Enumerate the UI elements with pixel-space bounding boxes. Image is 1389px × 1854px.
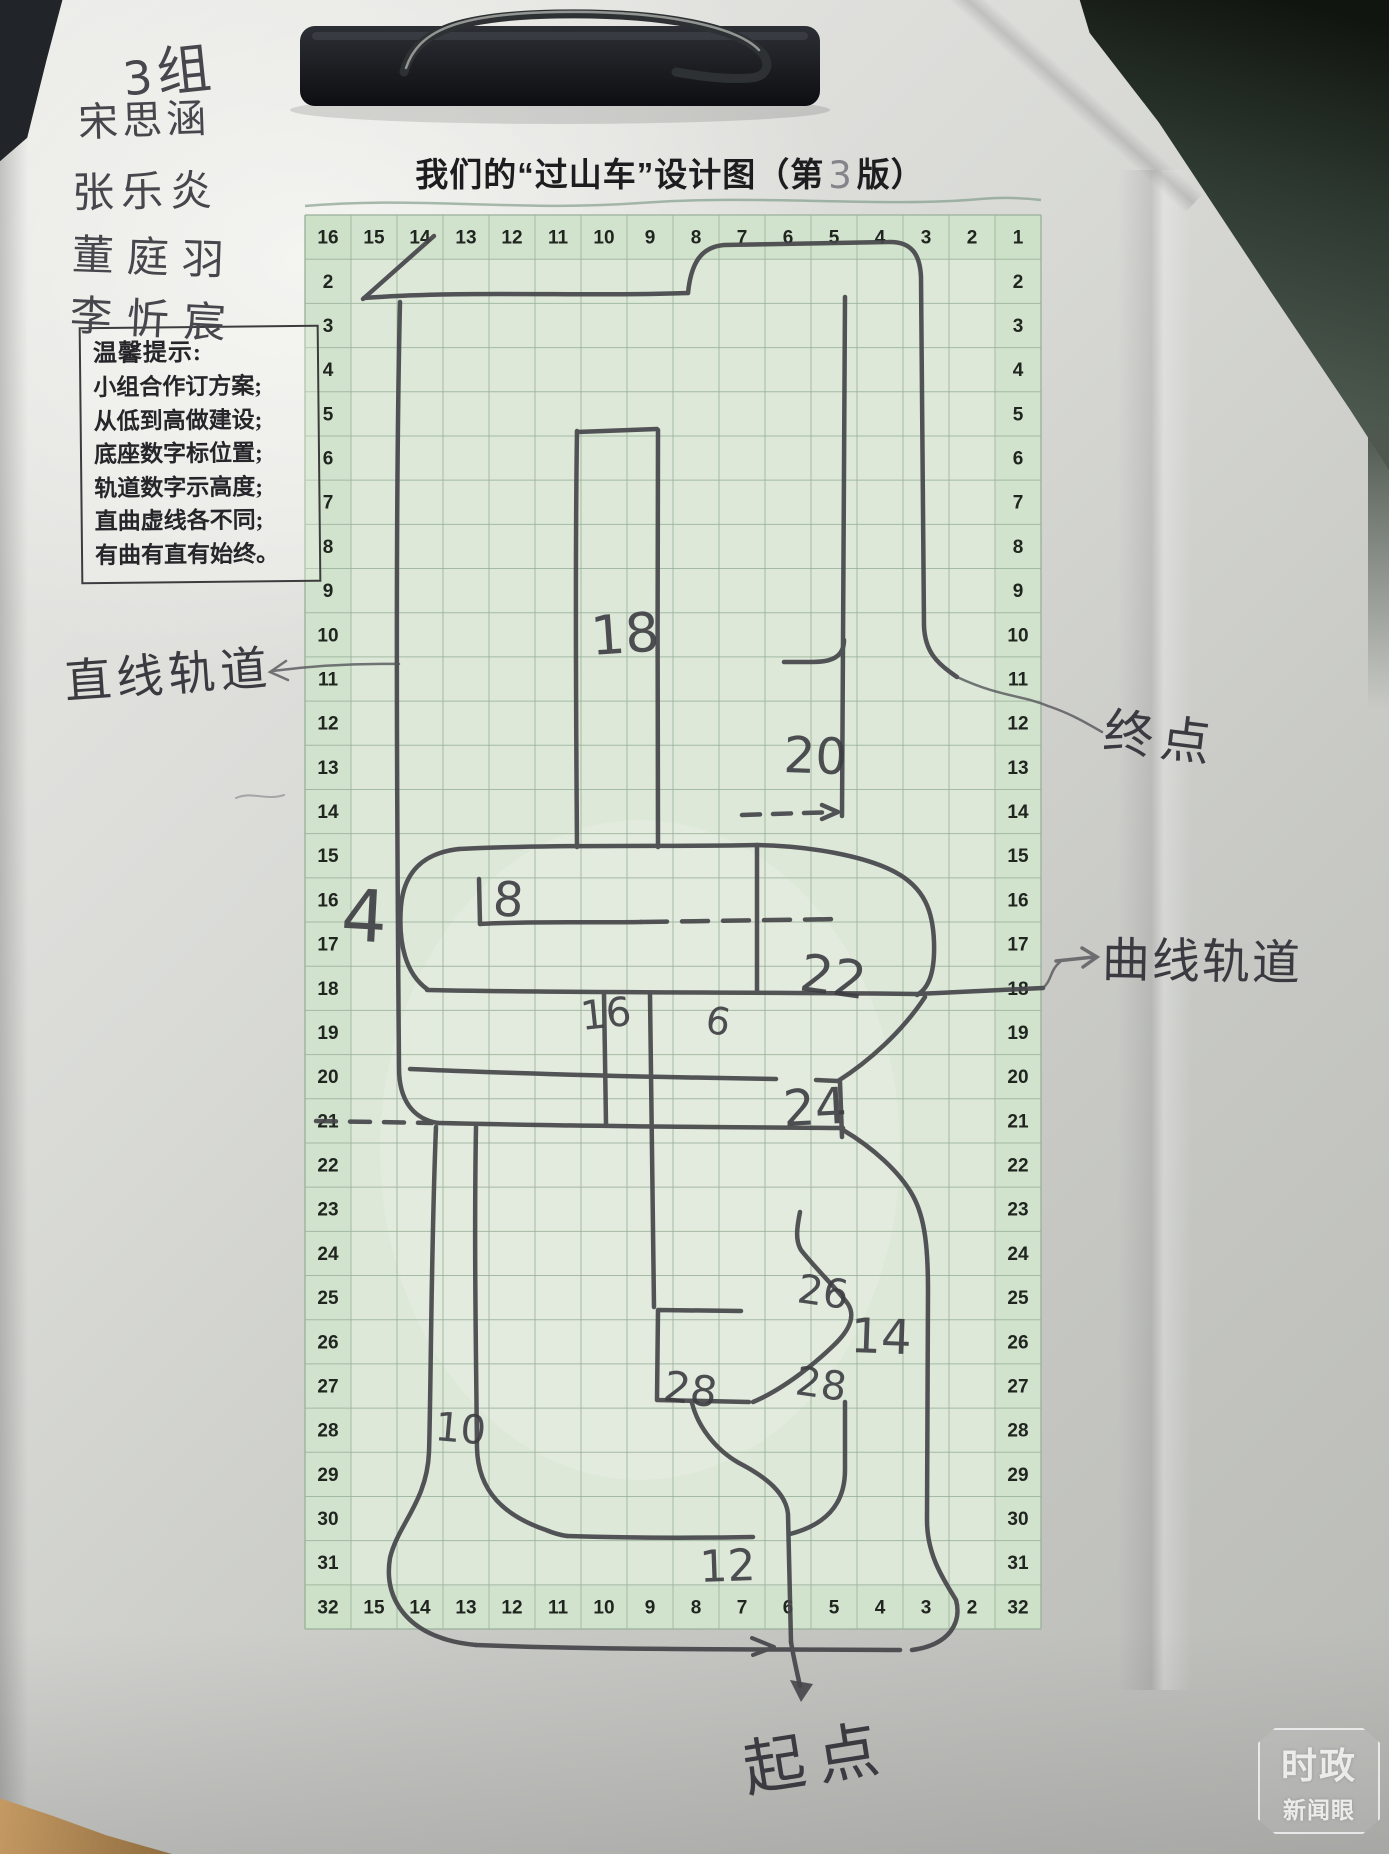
tips-line: 直曲虚线各不同;	[95, 503, 309, 539]
grid-label: 6	[323, 449, 334, 470]
grid-label: 28	[317, 1421, 338, 1442]
grid-label: 4	[875, 1597, 886, 1618]
grid-label: 13	[455, 228, 476, 249]
grid-label: 7	[737, 1597, 748, 1618]
height-note-16: 16	[578, 989, 633, 1040]
height-note-22: 22	[796, 943, 870, 1012]
grid-label: 15	[363, 1597, 385, 1618]
grid-label: 20	[1007, 1067, 1028, 1088]
grid-label: 28	[1007, 1421, 1028, 1442]
tips-line: 有曲有直有始终。	[95, 536, 309, 572]
grid-label: 3	[921, 228, 932, 249]
grid-label: 24	[1007, 1244, 1029, 1265]
grid-label: 23	[1007, 1200, 1028, 1221]
grid-label: 5	[1013, 404, 1024, 425]
grid-label: 18	[317, 979, 338, 1000]
news-watermark: 时政 新闻眼	[1258, 1728, 1380, 1834]
height-note-20: 20	[783, 726, 849, 786]
tips-line: 轨道数字示高度;	[94, 469, 308, 505]
grid-label: 4	[1013, 360, 1024, 381]
grid-label: 30	[1007, 1509, 1028, 1530]
grid-label: 12	[317, 714, 338, 735]
grid-label: 25	[1007, 1288, 1029, 1309]
grid-label: 8	[323, 537, 334, 558]
grid-label: 17	[1007, 935, 1028, 956]
grid-label: 3	[921, 1597, 932, 1618]
grid-label: 31	[1007, 1553, 1029, 1574]
tips-line: 底座数字标位置;	[94, 436, 308, 472]
grid-label: 11	[548, 1597, 569, 1618]
sheet-top-edge	[305, 198, 1041, 206]
member-name: 董庭羽	[71, 221, 238, 288]
grid-label: 2	[1013, 272, 1024, 293]
height-note-18: 18	[589, 600, 662, 668]
grid-label: 32	[1007, 1597, 1028, 1618]
grid-label: 26	[317, 1332, 338, 1353]
grid-label: 31	[317, 1553, 339, 1574]
grid-label: 3	[323, 316, 334, 337]
grid-label: 7	[1013, 493, 1024, 514]
grid-label: 2	[967, 228, 978, 249]
grid-label: 16	[317, 228, 338, 249]
tips-box: 温馨提示: 小组合作订方案; 从低到高做建设; 底座数字标位置; 轨道数字示高度…	[79, 325, 322, 584]
annotation-straight-track: 直线轨道	[62, 629, 274, 712]
table-edge-strip	[1368, 430, 1389, 710]
title-version-handwritten: 3	[824, 154, 857, 197]
height-note-12: 12	[699, 1540, 757, 1593]
member-name: 宋思涵	[77, 86, 211, 149]
grid-label: 29	[1007, 1465, 1028, 1486]
grid-label: 4	[875, 228, 886, 249]
grid-label: 14	[409, 1597, 431, 1618]
height-note-28a: 28	[661, 1361, 721, 1417]
grid-label: 6	[1013, 449, 1024, 470]
height-note-24: 24	[782, 1077, 849, 1138]
watermark-line1: 时政	[1281, 1737, 1357, 1789]
grid-label: 9	[645, 228, 656, 249]
start-arrowhead	[790, 1680, 813, 1702]
grid-label: 1	[1013, 228, 1024, 249]
grid-label: 22	[1007, 1156, 1028, 1177]
grid-label: 10	[1007, 625, 1028, 646]
grid-label: 11	[1008, 669, 1029, 690]
grid-label: 15	[317, 846, 339, 867]
grid-label: 16	[1007, 890, 1028, 911]
grid-label: 9	[645, 1597, 656, 1618]
grid-label: 15	[1007, 846, 1029, 867]
grid-label: 8	[691, 1597, 702, 1618]
grid-label: 19	[317, 1023, 338, 1044]
photo-of-clipboard: 1615141312111098765432132151413121110987…	[0, 0, 1389, 1854]
annotation-curved-track: 曲线轨道	[1101, 920, 1302, 993]
grid-label: 26	[1007, 1332, 1028, 1353]
grid-label: 3	[1013, 316, 1024, 337]
grid-label: 9	[1013, 581, 1024, 602]
member-name: 李忻宸	[69, 282, 243, 352]
height-note-26: 26	[795, 1266, 852, 1319]
grid-label: 24	[317, 1244, 339, 1265]
grid-label: 10	[317, 625, 338, 646]
grid-label: 17	[317, 935, 338, 956]
grid-label: 8	[691, 228, 702, 249]
grid-label: 5	[323, 404, 334, 425]
title-suffix: 版）	[857, 156, 925, 193]
height-note-28b: 28	[793, 1358, 850, 1411]
annotation-end-point: 终点	[1100, 691, 1222, 776]
grid-label: 27	[317, 1376, 338, 1397]
grid-label: 25	[317, 1288, 339, 1309]
grid-label: 10	[593, 228, 614, 249]
height-note-14: 14	[850, 1308, 913, 1366]
page-title: 我们的“过山车”设计图（第3版）	[350, 148, 990, 196]
grid-label: 14	[1007, 802, 1029, 823]
grid-label: 5	[829, 228, 840, 249]
grid-label: 12	[501, 228, 522, 249]
grid-label: 11	[318, 669, 339, 690]
grid-label: 13	[317, 758, 338, 779]
grid-label: 21	[1007, 1111, 1029, 1132]
grid-label: 30	[317, 1509, 338, 1530]
grid-label: 2	[967, 1597, 978, 1618]
grid-label: 10	[593, 1597, 614, 1618]
tips-line: 从低到高做建设;	[93, 402, 307, 438]
watermark-line2: 新闻眼	[1283, 1791, 1355, 1825]
grid-label: 7	[323, 493, 334, 514]
grid-label: 13	[1007, 758, 1028, 779]
grid-label: 13	[455, 1597, 476, 1618]
grid-label: 22	[317, 1156, 338, 1177]
grid-label: 19	[1007, 1023, 1028, 1044]
height-note-10: 10	[433, 1404, 488, 1454]
grid-label: 15	[363, 228, 385, 249]
grid-label: 8	[1013, 537, 1024, 558]
height-note-8: 8	[491, 871, 525, 929]
grid-label: 29	[317, 1465, 338, 1486]
grid-label: 5	[829, 1597, 840, 1618]
grid-label: 9	[323, 581, 334, 602]
height-note-4: 4	[339, 873, 389, 959]
grid-label: 2	[323, 272, 334, 293]
grid-label: 32	[317, 1597, 338, 1618]
grid-label: 20	[317, 1067, 338, 1088]
member-name: 张乐炎	[71, 157, 219, 221]
grid-label: 12	[501, 1597, 522, 1618]
title-prefix: 我们的“过山车”设计图（第	[415, 156, 824, 193]
grid-label: 23	[317, 1200, 338, 1221]
grid-label: 14	[317, 802, 339, 823]
grid-label: 4	[323, 360, 334, 381]
grid-label: 12	[1007, 714, 1028, 735]
grid-label: 11	[548, 228, 569, 249]
grid-label: 16	[317, 890, 338, 911]
tips-line: 小组合作订方案;	[93, 369, 307, 405]
grid-label: 27	[1007, 1376, 1028, 1397]
